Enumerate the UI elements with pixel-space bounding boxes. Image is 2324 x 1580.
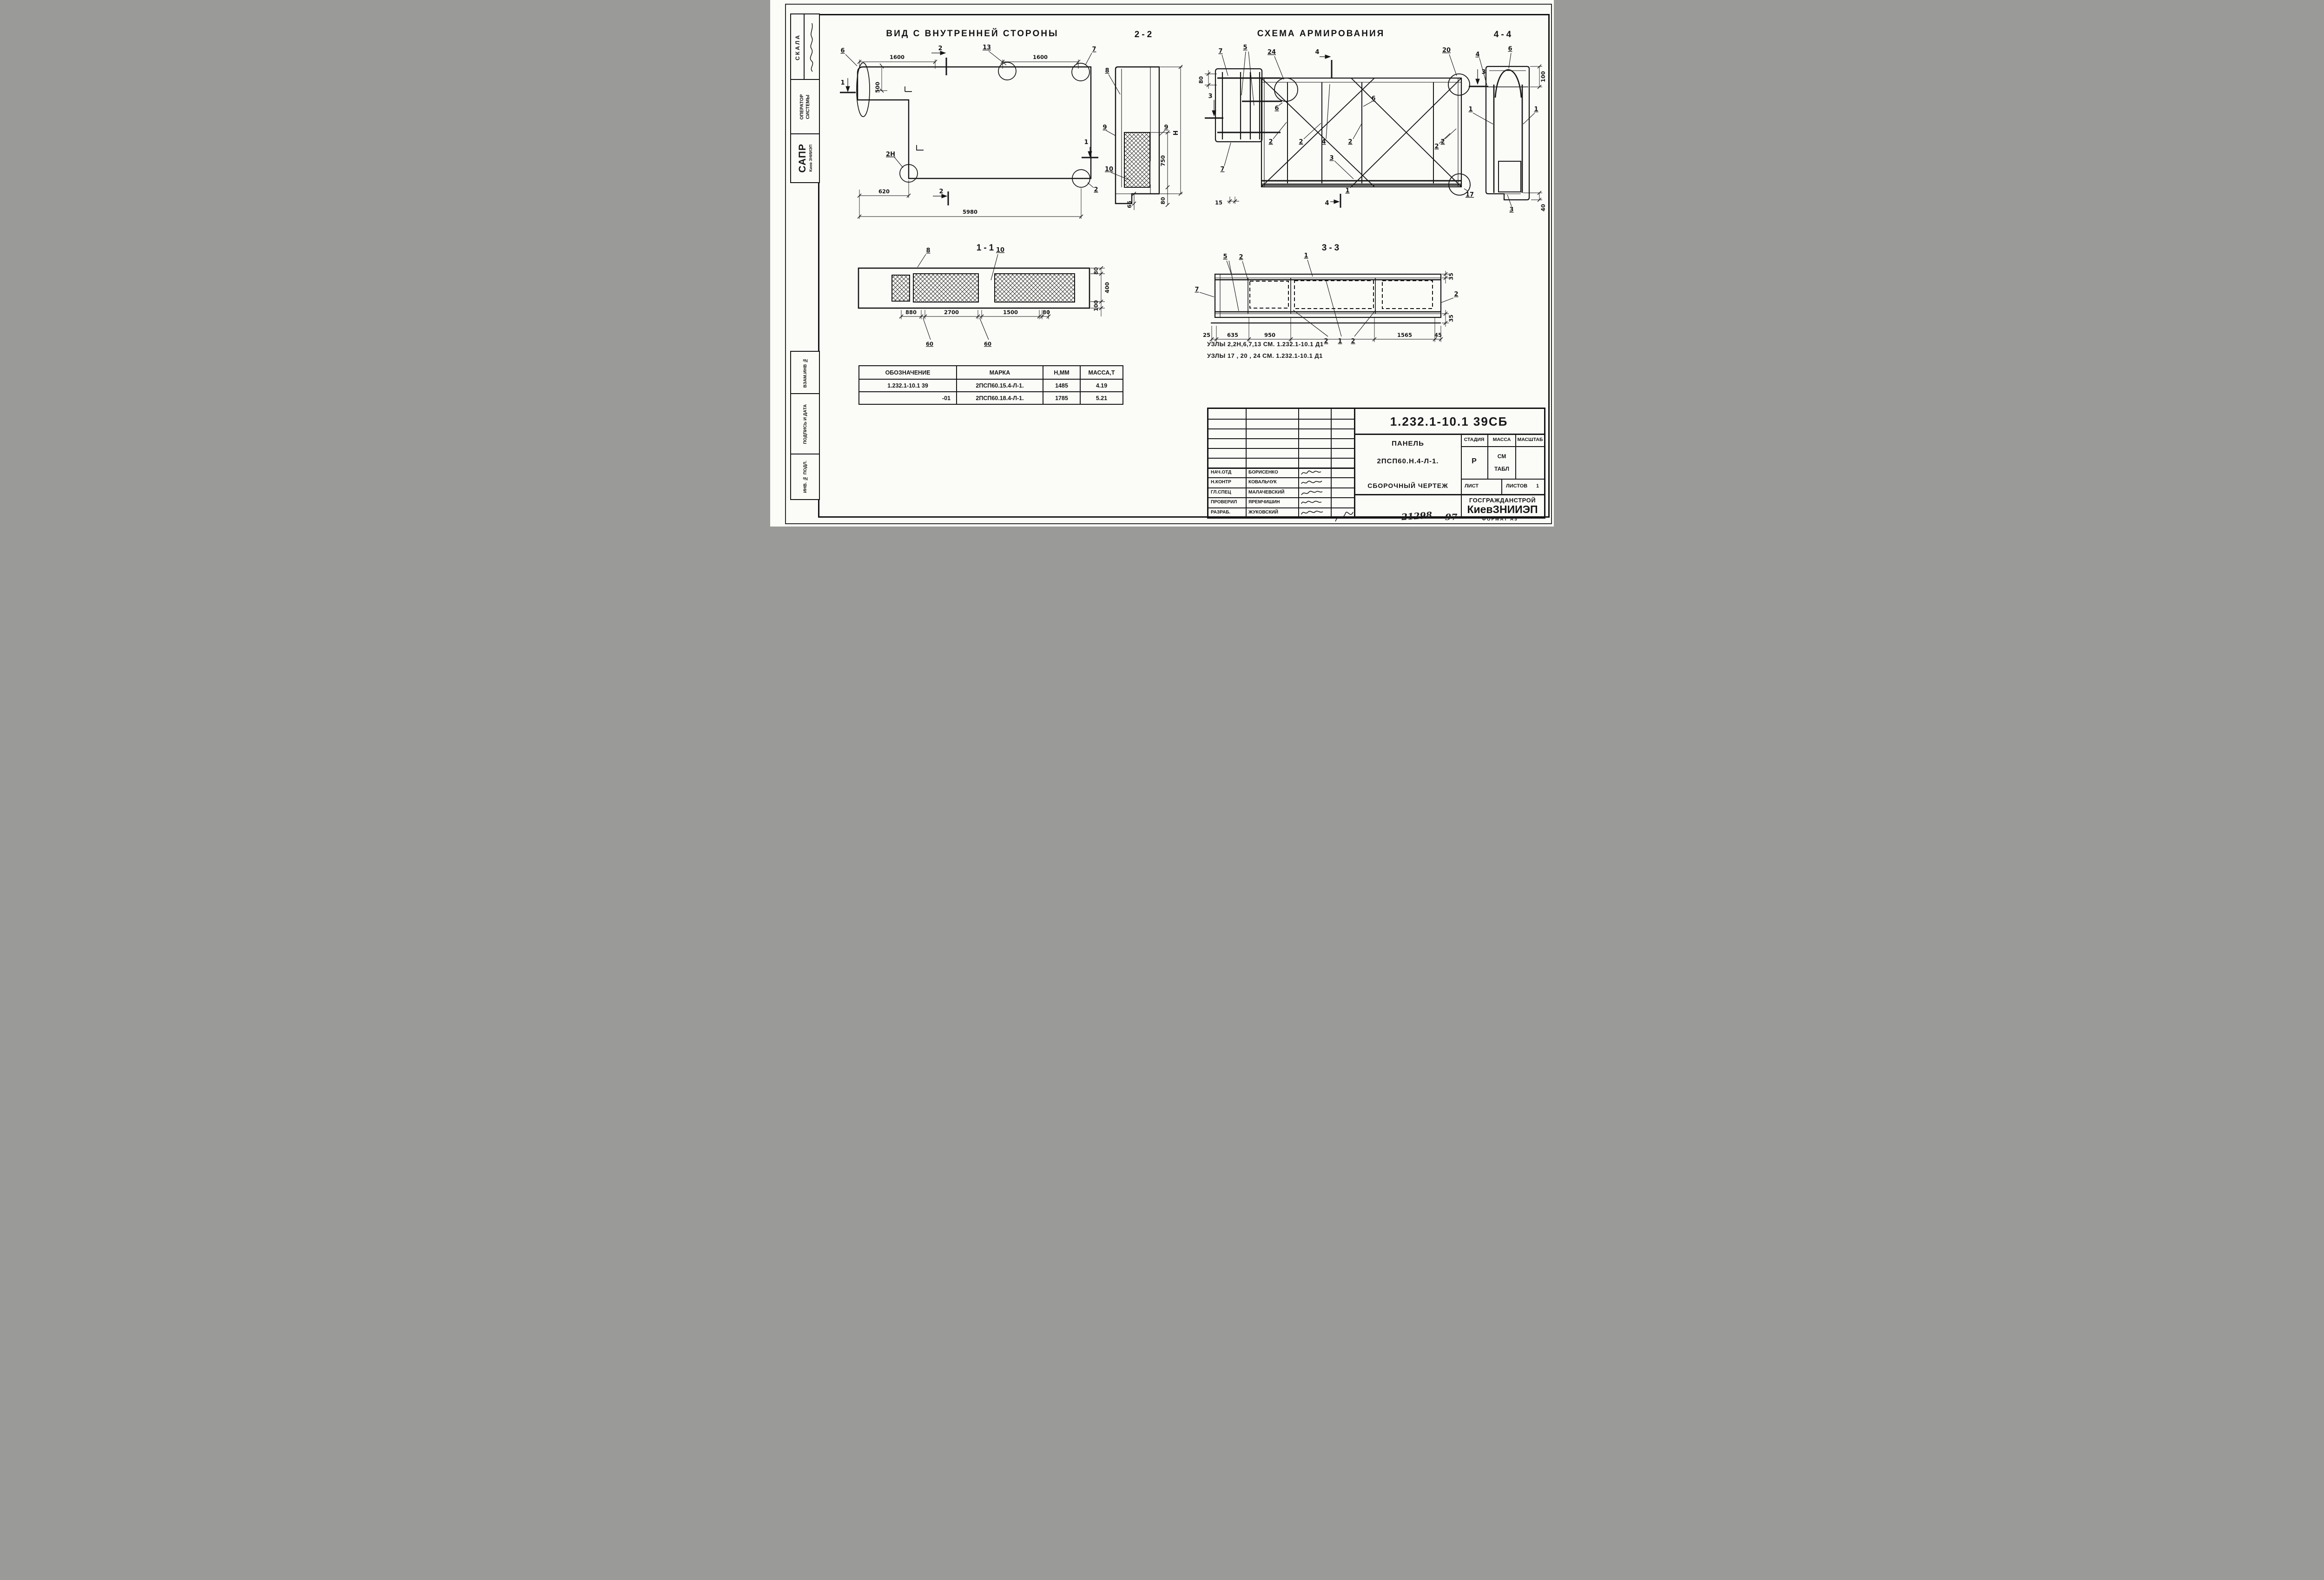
col-header: Н,ММ bbox=[1043, 366, 1080, 379]
section-marker-label: 4 bbox=[1325, 200, 1329, 207]
cell-h: 1785 bbox=[1043, 392, 1080, 404]
sig-role: ГЛ.СПЕЦ bbox=[1211, 490, 1231, 495]
sig-name: КОВАЛЬЧУК bbox=[1248, 480, 1277, 485]
dim-label: 2700 bbox=[944, 309, 959, 316]
part-label: 4 bbox=[1321, 138, 1326, 145]
col-header: МАРКА bbox=[957, 366, 1043, 379]
stamp-podpis-box: ПОДПИСЬ И ДАТА bbox=[790, 393, 820, 455]
dim-label: 60 bbox=[926, 341, 933, 347]
part-label: 1 bbox=[1468, 106, 1472, 113]
notes-line2: УЗЛЫ 17 , 20 , 24 СМ. 1.232.1-10.1 Д1 bbox=[1207, 352, 1323, 359]
doc-number: 1.232.1-10.1 39СБ bbox=[1354, 415, 1544, 429]
part-label: 10 bbox=[996, 247, 1004, 254]
sheets-label: ЛИСТОВ bbox=[1506, 483, 1527, 489]
part-label: 9 bbox=[1103, 124, 1107, 131]
part-label: 4 bbox=[1475, 51, 1479, 58]
view6-drawing: 5 2 1 7 2 25 635 950 2 1 2 1565 45 35 35 bbox=[1186, 239, 1465, 353]
stamp-inv-box: ИНВ. № ПОДЛ. bbox=[790, 454, 820, 500]
signature-scribble bbox=[1334, 509, 1355, 523]
dim-label: 40 bbox=[1540, 204, 1546, 211]
stamp-operator-line2: СИСТЕМЫ bbox=[805, 95, 811, 119]
title-block: 1.232.1-10.1 39СБ ПАНЕЛЬ 2ПСП60.Н.4-Л-1.… bbox=[1207, 408, 1545, 519]
view3-drawing: 7 5 24 4 80 3 7 15 6 6 2 2 4 2 2 3 1 4 2… bbox=[1191, 26, 1498, 225]
signature-scribble bbox=[1301, 478, 1325, 487]
dim-label: 500 bbox=[874, 82, 881, 93]
part-label: 8 bbox=[1105, 67, 1109, 74]
section-marker-label: 3 bbox=[1208, 93, 1212, 100]
part-label: 7 bbox=[1218, 48, 1222, 55]
section-marker-label: 2 bbox=[939, 188, 943, 195]
part-label: 7 bbox=[1220, 166, 1224, 173]
product-name-line2: 2ПСП60.Н.4-Л-1. bbox=[1355, 457, 1460, 465]
col-mass-header: МАССА bbox=[1488, 437, 1515, 442]
dim-label: 1600 bbox=[890, 54, 905, 60]
stamp-operator-box: ОПЕРАТОР СИСТЕМЫ bbox=[790, 79, 820, 135]
signature-scribble bbox=[1301, 468, 1325, 477]
sig-role: НАЧ.ОТД bbox=[1211, 470, 1231, 475]
dim-label: 880 bbox=[905, 309, 917, 316]
sheet-label: ЛИСТ bbox=[1465, 483, 1479, 489]
dim-label: Н bbox=[1173, 131, 1180, 136]
stamp-skala-label: СКАЛА bbox=[794, 34, 801, 60]
part-label: 2 bbox=[1348, 138, 1352, 145]
sig-name: МАЛАЧЕВСКИЙ bbox=[1248, 490, 1284, 495]
part-label: 10 bbox=[1105, 166, 1113, 173]
stamp-sapr-box: САПР Киев ЗНИИЭП bbox=[790, 133, 820, 183]
cell-h: 1485 bbox=[1043, 379, 1080, 392]
section-marker-label: 4 bbox=[1315, 49, 1319, 56]
dim-label: 1500 bbox=[1003, 309, 1018, 316]
part-label: 2 bbox=[1094, 186, 1098, 193]
dim-label: 80 bbox=[1093, 267, 1099, 275]
col-scale-header: МАСШТАБ bbox=[1516, 437, 1544, 442]
view4-drawing: 4 6 1 1 3 100 40 bbox=[1465, 26, 1553, 221]
cell-mass: 5.21 bbox=[1080, 392, 1123, 404]
view1-drawing: 1600 1600 500 620 5980 2 2 1 1 6 13 7 2Н… bbox=[835, 42, 1105, 223]
spec-table: ОБОЗНАЧЕНИЕ МАРКА Н,ММ МАССА,Т 1.232.1-1… bbox=[858, 365, 1123, 405]
section-marker-label: 2 bbox=[938, 45, 942, 52]
part-label: 2 bbox=[1324, 338, 1328, 345]
dim-label: 80 bbox=[1043, 309, 1050, 316]
stamp-podpis-label: ПОДПИСЬ И ДАТА bbox=[803, 404, 808, 444]
col-stage-header: СТАДИЯ bbox=[1461, 437, 1487, 442]
part-label: 1 bbox=[1304, 252, 1308, 259]
handwritten-sheet-number: 97 bbox=[1445, 512, 1457, 522]
stage-value: Р bbox=[1461, 457, 1487, 466]
stamp-skala-box: СКАЛА bbox=[790, 13, 820, 81]
part-label: 2 bbox=[1454, 291, 1458, 298]
stamp-operator-line1: ОПЕРАТОР bbox=[799, 94, 805, 119]
part-label: 1 bbox=[1345, 187, 1349, 194]
view1-title: ВИД С ВНУТРЕННЕЙ СТОРОНЫ bbox=[882, 29, 1063, 39]
format-label: ФОРМАТ А3 bbox=[1467, 517, 1532, 522]
sig-role: Н.КОНТР bbox=[1211, 480, 1231, 485]
org-line2: КиевЗНИИЭП bbox=[1461, 503, 1544, 516]
dim-label: 80 bbox=[1160, 197, 1166, 204]
part-label: 2 bbox=[1299, 138, 1303, 145]
stamp-sapr-sub: Киев ЗНИИЭП bbox=[808, 145, 813, 172]
view2-drawing: 8 9 9 10 Н 750 80 65 bbox=[1103, 28, 1191, 223]
signature-scribble bbox=[1301, 488, 1325, 497]
stamp-inv-label: ИНВ. № ПОДЛ. bbox=[803, 461, 808, 493]
part-label: 9 bbox=[1164, 124, 1168, 131]
signature-scribble bbox=[1301, 498, 1325, 507]
part-label: 7 bbox=[1195, 286, 1199, 293]
dim-label: 635 bbox=[1227, 332, 1238, 338]
dim-label: 65 bbox=[1126, 201, 1133, 208]
col-header: ОБОЗНАЧЕНИЕ bbox=[859, 366, 957, 379]
sig-role: РАЗРАБ. bbox=[1211, 510, 1230, 515]
cell-mark: 2ПСП60.18.4-Л-1. bbox=[957, 392, 1043, 404]
part-label: 2 bbox=[1440, 138, 1445, 145]
sig-role: ПРОВЕРИЛ bbox=[1211, 500, 1237, 505]
dim-label: 620 bbox=[878, 188, 890, 195]
part-label: 6 bbox=[1274, 105, 1279, 112]
part-label: 13 bbox=[983, 44, 991, 51]
dim-label: 1565 bbox=[1397, 332, 1412, 338]
signature-scribble bbox=[1301, 508, 1325, 517]
notes-line1: УЗЛЫ 2,2Н,6,7,13 СМ. 1.232.1-10.1 Д1 bbox=[1207, 341, 1324, 348]
drawing-sheet: СКАЛА ОПЕРАТОР СИСТЕМЫ САПР Киев ЗНИИЭП … bbox=[770, 0, 1554, 527]
part-label: 2 bbox=[1434, 143, 1439, 150]
handwritten-code: 21298 bbox=[1401, 510, 1432, 523]
dim-label: 400 bbox=[1104, 282, 1110, 293]
dim-label: 5980 bbox=[963, 209, 977, 215]
stamp-sapr-label: САПР bbox=[797, 144, 808, 173]
dim-label: 1600 bbox=[1033, 54, 1048, 60]
org-line1: ГОСГРАЖДАНСТРОЙ bbox=[1461, 497, 1544, 504]
dim-label: 100 bbox=[1540, 71, 1546, 82]
signature-scribble bbox=[807, 20, 817, 75]
table-row: 1.232.1-10.1 39 2ПСП60.15.4-Л-1. 1485 4.… bbox=[859, 379, 1123, 392]
table-header-row: ОБОЗНАЧЕНИЕ МАРКА Н,ММ МАССА,Т bbox=[859, 366, 1123, 379]
part-label: 2 bbox=[1239, 254, 1243, 261]
part-label: 1 bbox=[1338, 338, 1342, 345]
dim-label: 950 bbox=[1264, 332, 1275, 338]
part-label: 2 bbox=[1351, 338, 1355, 345]
dim-label: 35 bbox=[1448, 315, 1454, 322]
product-name-line1: ПАНЕЛЬ bbox=[1355, 440, 1460, 448]
view5-drawing: 8 10 880 2700 1500 80 60 60 80 400 100 bbox=[852, 239, 1130, 353]
part-label: 1 bbox=[1534, 106, 1538, 113]
table-row: -01 2ПСП60.18.4-Л-1. 1785 5.21 bbox=[859, 392, 1123, 404]
part-label: 5 bbox=[1223, 253, 1227, 260]
cell-mass: 4.19 bbox=[1080, 379, 1123, 392]
part-label: 6 bbox=[840, 47, 845, 54]
part-label: 24 bbox=[1268, 49, 1276, 56]
dim-label: 45 bbox=[1434, 332, 1442, 338]
part-label: 8 bbox=[926, 247, 930, 254]
dim-label: 750 bbox=[1160, 155, 1166, 166]
dim-label: 60 bbox=[984, 341, 991, 347]
part-label: 6 bbox=[1371, 95, 1375, 102]
part-label: 7 bbox=[1092, 46, 1096, 53]
cell-mark: 2ПСП60.15.4-Л-1. bbox=[957, 379, 1043, 392]
dim-label: 100 bbox=[1093, 300, 1099, 311]
dim-label: 35 bbox=[1448, 273, 1454, 280]
stamp-vzam-box: ВЗАМ.ИНВ № bbox=[790, 351, 820, 395]
sig-name: ЯРЕМЧИШИН bbox=[1248, 500, 1280, 505]
part-label: 2Н bbox=[886, 151, 895, 158]
cell-designation: -01 bbox=[859, 392, 957, 404]
part-label: 3 bbox=[1509, 206, 1513, 213]
section-marker-label: 1 bbox=[1084, 139, 1088, 146]
dim-label: 15 bbox=[1215, 199, 1222, 206]
part-label: 5 bbox=[1243, 44, 1247, 51]
section-marker-label: 1 bbox=[840, 79, 845, 86]
mass-value-line2: ТАБЛ bbox=[1488, 466, 1515, 472]
product-name-line3: СБОРОЧНЫЙ ЧЕРТЕЖ bbox=[1355, 482, 1460, 489]
mass-value-line1: СМ bbox=[1488, 453, 1515, 460]
cell-designation: 1.232.1-10.1 39 bbox=[859, 379, 957, 392]
dim-label: 25 bbox=[1203, 332, 1210, 338]
part-label: 2 bbox=[1268, 138, 1273, 145]
part-label: 6 bbox=[1508, 46, 1512, 53]
part-label: 20 bbox=[1442, 47, 1451, 54]
dim-label: 80 bbox=[1198, 76, 1204, 84]
sig-name: ЖУКОВСКИЙ bbox=[1248, 510, 1278, 515]
stamp-vzam-label: ВЗАМ.ИНВ № bbox=[803, 358, 808, 388]
col-header: МАССА,Т bbox=[1080, 366, 1123, 379]
part-label: 3 bbox=[1329, 155, 1334, 162]
sig-name: БОРИСЕНКО bbox=[1248, 470, 1278, 475]
sheets-value: 1 bbox=[1536, 483, 1539, 489]
